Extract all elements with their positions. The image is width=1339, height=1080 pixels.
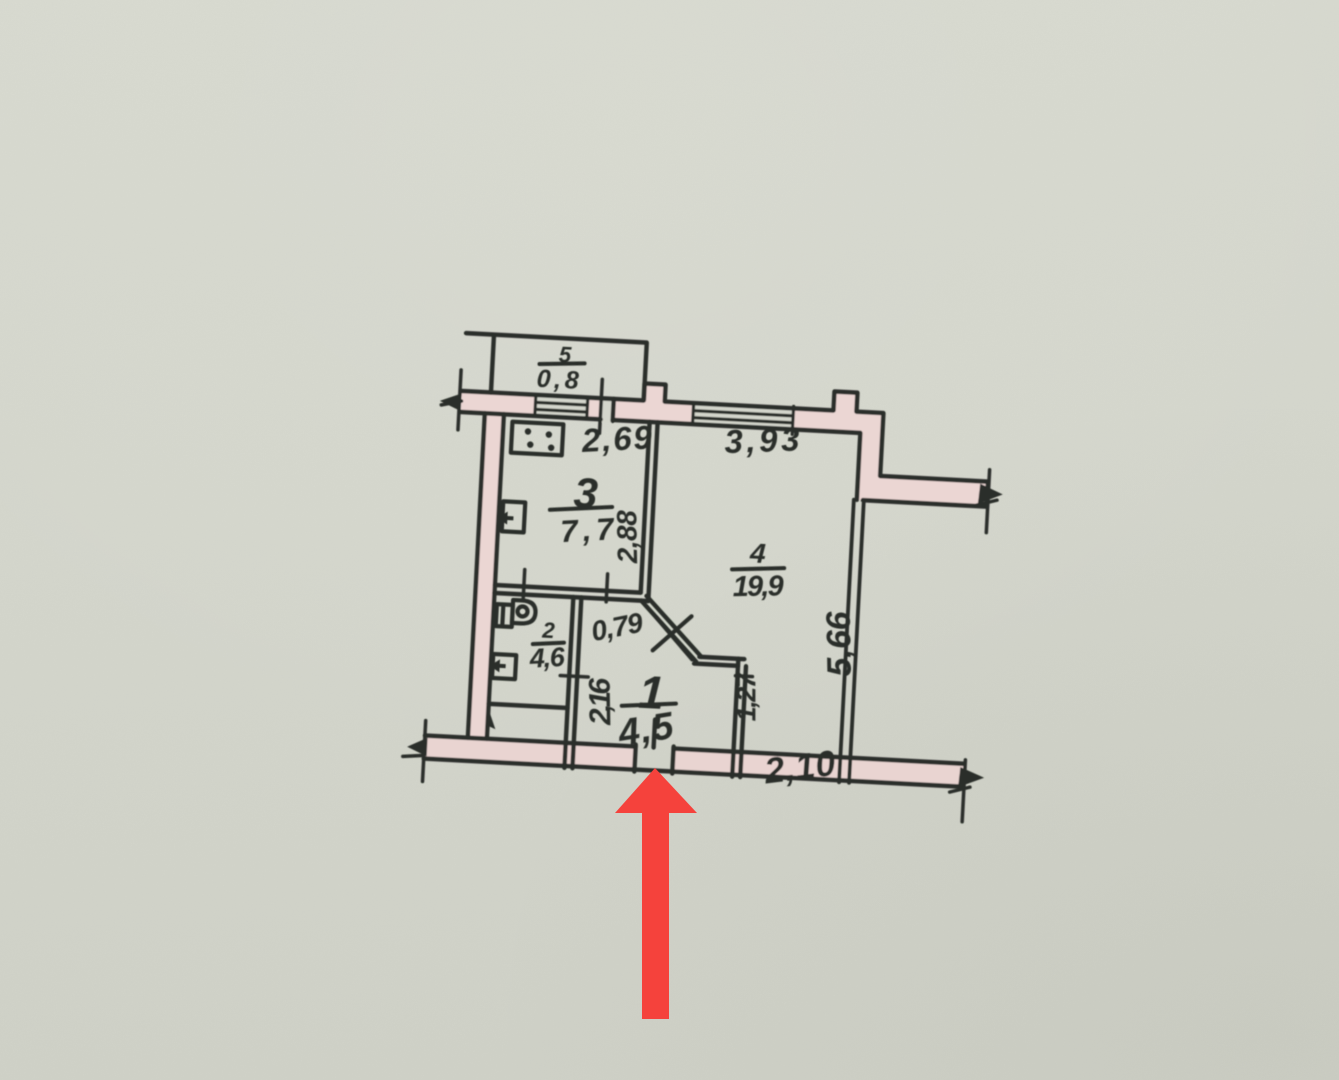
svg-text:1,27: 1,27 [731,671,761,721]
svg-text:2,10: 2,10 [761,742,837,791]
svg-text:4: 4 [748,537,767,569]
svg-text:3: 3 [573,469,599,518]
svg-text:3,93: 3,93 [724,420,800,460]
svg-text:7,7: 7,7 [560,511,617,549]
svg-text:2,69: 2,69 [580,418,653,459]
svg-text:0,8: 0,8 [536,365,580,395]
svg-text:5,66: 5,66 [820,610,859,677]
svg-text:2,88: 2,88 [611,510,643,565]
svg-text:4,6: 4,6 [528,642,566,674]
svg-text:2,16: 2,16 [584,677,618,726]
svg-text:2: 2 [541,618,556,644]
svg-text:19,9: 19,9 [732,570,784,603]
svg-text:4,5: 4,5 [614,705,677,755]
